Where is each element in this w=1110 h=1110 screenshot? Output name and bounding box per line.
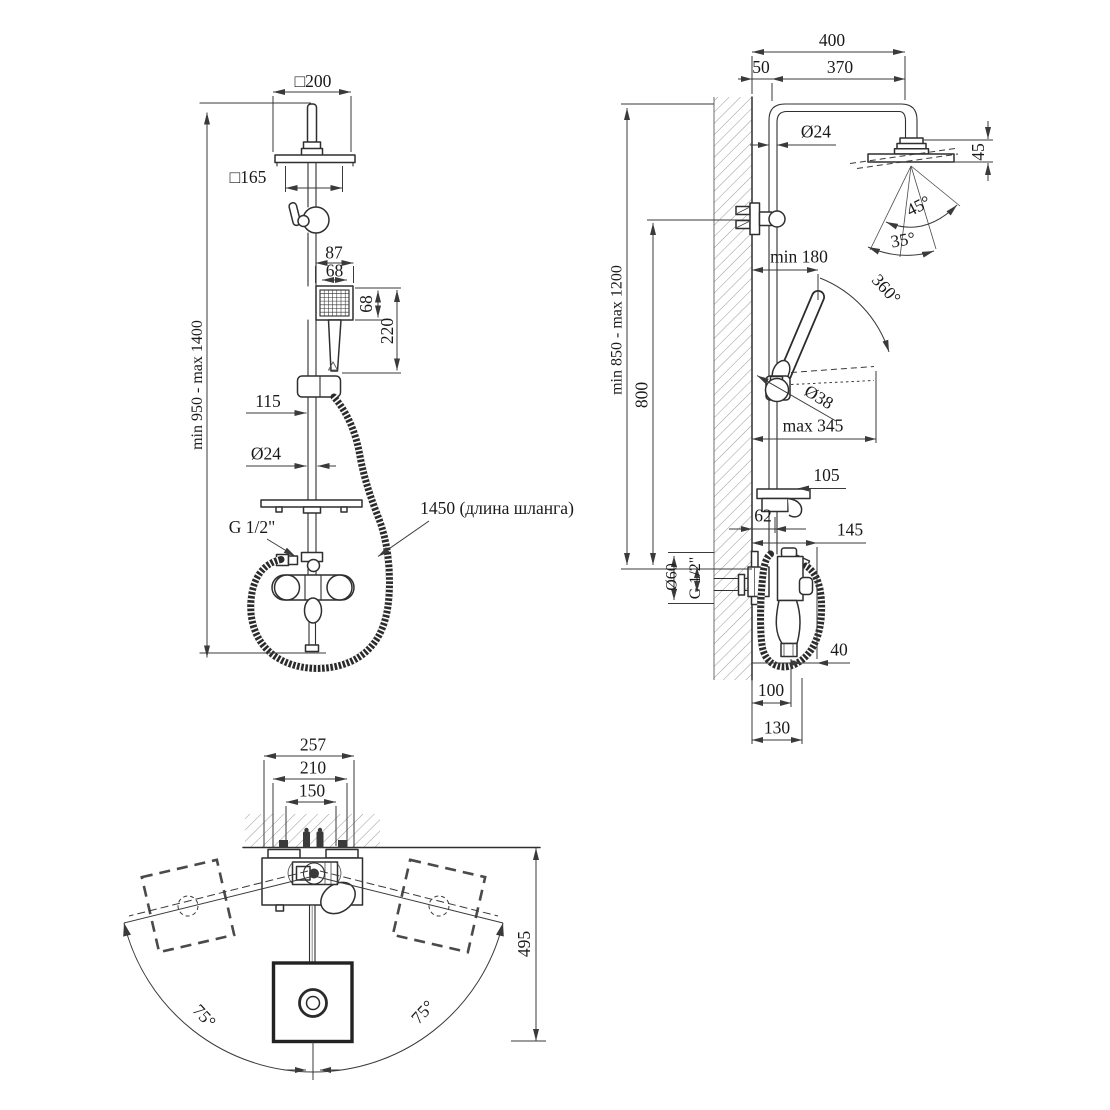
dim-spout-span: 257 — [300, 735, 327, 755]
adjuster-knob-front — [288, 202, 329, 233]
dim-handset-inner-width: 68 — [326, 261, 344, 281]
dim-bracket-height: 800 — [632, 382, 652, 409]
dim-handset-reach: max 345 — [783, 416, 844, 436]
front-shower-column — [251, 104, 390, 668]
dim-holder-diameter: Ø38 — [801, 381, 837, 414]
plan-view: 257 210 150 495 75° 75° — [123, 735, 546, 1081]
dim-mount-size: □165 — [230, 167, 267, 187]
dim-head-height: 45 — [968, 143, 988, 161]
front-labels: □200 □165 87 68 68 220 115 Ø24 G 1/2" 14… — [189, 71, 574, 537]
dim-handset-offset: min 180 — [770, 247, 828, 267]
shower-system-drawing: □200 □165 87 68 68 220 115 Ø24 G 1/2" 14… — [0, 0, 1110, 1110]
wall-section-side — [714, 97, 752, 680]
dim-spray-angle: 35° — [889, 228, 917, 252]
mixer-front — [272, 575, 354, 652]
overhead-shower-front — [275, 155, 355, 166]
hand-shower-front — [316, 286, 353, 371]
dim-handset-height: 68 — [356, 295, 376, 313]
technical-drawing-page: □200 □165 87 68 68 220 115 Ø24 G 1/2" 14… — [0, 0, 1110, 1110]
thread-label-side: G 1/2" — [687, 557, 704, 600]
shelf-front — [261, 500, 362, 513]
dim-hose-clearance: 40 — [830, 640, 848, 660]
dim-bracket-offset: 115 — [255, 391, 281, 411]
dim-arm-total: 400 — [819, 30, 846, 50]
shower-arm-front — [308, 104, 317, 144]
dim-pipe-diameter-front: Ø24 — [251, 444, 281, 464]
dim-mixer-reach: 145 — [837, 520, 864, 540]
dim-swing-radius: 495 — [514, 931, 534, 958]
dim-swing-angle-right: 75° — [407, 996, 438, 1028]
dim-head-size: □200 — [295, 71, 332, 91]
dim-pipe-diameter-side: Ø24 — [801, 122, 831, 142]
dim-arm-reach: 370 — [827, 57, 854, 77]
dim-column-height-range: min 850 - max 1200 — [609, 265, 626, 395]
dim-inlet-spacing: 150 — [299, 781, 326, 801]
side-view: 400 50 370 Ø24 45 45° 35° min 180 360° Ø… — [609, 30, 994, 744]
dim-shelf-depth: 105 — [813, 465, 840, 485]
hose-length-label: 1450 (длина шланга) — [420, 498, 574, 518]
plan-overhead-shower — [274, 963, 353, 1042]
dim-escutcheon-diameter: Ø60 — [664, 563, 681, 591]
dim-handset-outer-width: 87 — [325, 243, 343, 263]
dim-spout-reach: 100 — [758, 680, 785, 700]
thread-label-front: G 1/2" — [229, 517, 276, 537]
dim-handset-length: 220 — [377, 318, 397, 345]
dim-wall-offset: 50 — [752, 57, 770, 77]
riser-pipe-side — [769, 104, 917, 554]
dim-mount-span: 210 — [300, 758, 327, 778]
dim-mixer-depth: 130 — [764, 718, 791, 738]
dim-height-range-front: min 950 - max 1400 — [189, 320, 206, 450]
dim-shelf-offset: 62 — [754, 506, 772, 526]
dim-handset-swivel: 360° — [868, 270, 905, 308]
front-view: □200 □165 87 68 68 220 115 Ø24 G 1/2" 14… — [189, 71, 574, 668]
dim-swing-angle-left: 75° — [189, 1000, 220, 1032]
